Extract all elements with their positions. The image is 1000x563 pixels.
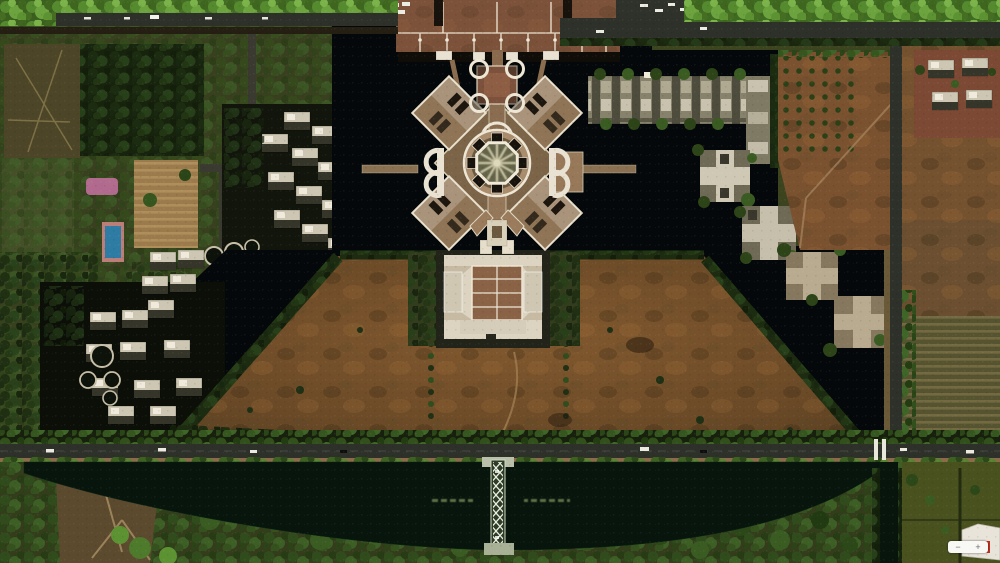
grain-overlay [0,0,1000,563]
zoom-out-button[interactable]: − [955,542,960,552]
zoom-in-button[interactable]: + [975,542,980,552]
satellite-map-view: − + [0,0,1000,563]
map-zoom-control[interactable]: − + [948,541,988,553]
satellite-scene [0,0,1000,563]
